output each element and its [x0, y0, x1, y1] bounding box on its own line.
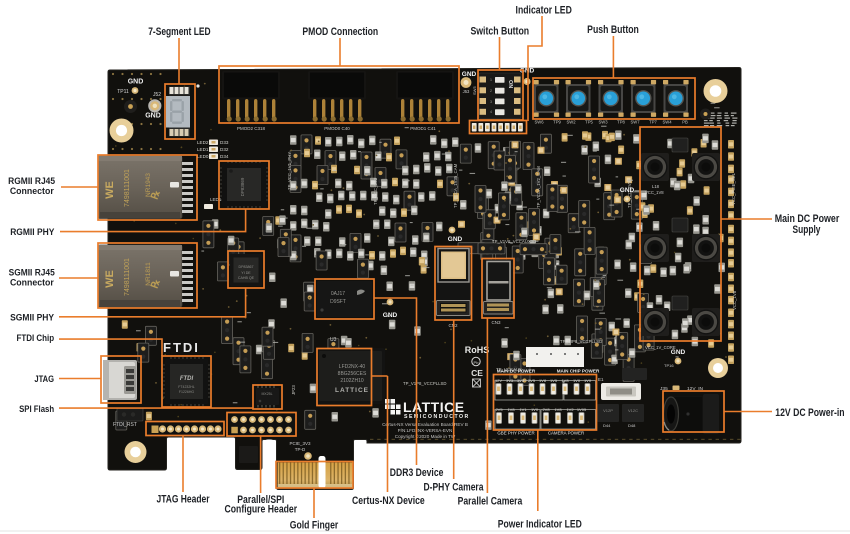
svg-text:JP23: JP23 — [291, 385, 296, 395]
svg-text:3V3: 3V3 — [517, 378, 525, 383]
svg-text:SGMII RJ45: SGMII RJ45 — [9, 267, 55, 277]
svg-text:2102ZH10: 2102ZH10 — [340, 378, 364, 384]
svg-text:RGMII PHY: RGMII PHY — [10, 227, 54, 237]
svg-text:J52: J52 — [153, 92, 161, 98]
svg-text:YI DE: YI DE — [241, 271, 251, 275]
svg-text:V12C: V12C — [628, 408, 638, 413]
svg-text:1V8: 1V8 — [561, 378, 569, 383]
svg-text:CAMERA POWER: CAMERA POWER — [548, 431, 584, 436]
svg-text:DP83869: DP83869 — [240, 177, 245, 196]
svg-text:JTAG Header: JTAG Header — [157, 494, 210, 506]
svg-text:D48: D48 — [628, 423, 636, 428]
svg-text:ON: ON — [507, 80, 513, 88]
svg-text:Configure Header: Configure Header — [225, 503, 298, 515]
svg-text:SW6: SW6 — [534, 120, 544, 125]
svg-text:7-Segment LED: 7-Segment LED — [148, 26, 211, 38]
svg-text:2V8: 2V8 — [542, 407, 550, 412]
svg-text:CE: CE — [471, 368, 483, 378]
svg-text:TP-D: TP-D — [295, 447, 306, 452]
svg-text:MX25L: MX25L — [261, 392, 272, 396]
svg-text:TP_VIP8_VCCPLLSD: TP_VIP8_VCCPLLSD — [560, 339, 602, 344]
svg-text:Power Indicator LED: Power Indicator LED — [498, 518, 582, 530]
svg-text:FT4232HL: FT4232HL — [178, 385, 195, 389]
svg-text:12V: 12V — [495, 378, 502, 383]
svg-text:E1: E1 — [598, 377, 604, 382]
svg-text:TP7: TP7 — [649, 120, 657, 125]
svg-text:MAIN DC POWER: MAIN DC POWER — [497, 369, 536, 374]
svg-text:1V5: 1V5 — [550, 378, 558, 383]
svg-text:WE: WE — [104, 181, 116, 199]
svg-text:PB: PB — [682, 120, 688, 125]
svg-text:SW2: SW2 — [566, 120, 576, 125]
svg-text:PMOD1 C41: PMOD1 C41 — [410, 126, 436, 131]
svg-text:PMOD0 C40: PMOD0 C40 — [324, 126, 350, 131]
svg-text:1V1: 1V1 — [519, 407, 527, 412]
svg-text:MAIN CHIP POWER: MAIN CHIP POWER — [557, 369, 600, 374]
svg-text:GND: GND — [462, 71, 477, 78]
svg-text:TP16: TP16 — [664, 363, 674, 368]
svg-text:1V8: 1V8 — [539, 378, 547, 383]
svg-text:WE: WE — [104, 270, 116, 288]
svg-text:D44: D44 — [603, 423, 611, 428]
svg-text:VCC_1V8: VCC_1V8 — [732, 290, 737, 310]
svg-text:GND: GND — [520, 68, 535, 75]
svg-text:1V0: 1V0 — [531, 407, 539, 412]
svg-text:Pb: Pb — [474, 360, 480, 365]
svg-text:GND: GND — [671, 349, 686, 356]
svg-text:D32: D32 — [220, 147, 229, 152]
svg-text:FTDI: FTDI — [163, 340, 200, 355]
svg-text:LED2: LED2 — [197, 140, 209, 145]
svg-text:TP_VCC_3V3: TP_VCC_3V3 — [373, 177, 378, 205]
svg-text:Connector: Connector — [10, 186, 54, 196]
svg-text:LED0: LED0 — [197, 154, 209, 159]
svg-text:Push Button: Push Button — [587, 24, 639, 36]
svg-text:1V0: 1V0 — [584, 378, 592, 383]
svg-text:Connector: Connector — [10, 277, 54, 287]
svg-text:FTDI_RST: FTDI_RST — [113, 422, 137, 428]
svg-text:TP8: TP8 — [617, 120, 625, 125]
svg-text:D-PHY Camera: D-PHY Camera — [424, 482, 484, 494]
svg-text:Supply: Supply — [793, 224, 821, 236]
svg-text:GND: GND — [383, 312, 398, 319]
svg-text:TP5: TP5 — [585, 120, 593, 125]
svg-text:TP9: TP9 — [553, 120, 561, 125]
svg-text:SW4: SW4 — [662, 120, 672, 125]
svg-text:1V2: 1V2 — [566, 407, 574, 412]
svg-text:LFD2NX-40: LFD2NX-40 — [339, 364, 366, 370]
svg-text:RGMII RJ45: RGMII RJ45 — [8, 176, 55, 186]
svg-text:TP_VCCA_1V2_CAM: TP_VCCA_1V2_CAM — [536, 166, 541, 208]
svg-text:U3: U3 — [330, 337, 337, 343]
svg-text:SW5: SW5 — [472, 86, 477, 95]
svg-text:Gold Finger: Gold Finger — [290, 519, 339, 531]
svg-text:D33: D33 — [220, 140, 229, 145]
svg-text:Switch Button: Switch Button — [470, 26, 529, 38]
svg-text:TP_VCCA_1V35_CAM: TP_VCCA_1V35_CAM — [453, 163, 458, 208]
svg-text:Certus-NX Versa Evaluation Boa: Certus-NX Versa Evaluation Board REV B — [382, 422, 468, 427]
svg-text:1V8: 1V8 — [507, 407, 515, 412]
svg-text:TP_V1P8_VCCPLLSD: TP_V1P8_VCCPLLSD — [403, 381, 446, 386]
svg-text:SEMICONDUCTOR: SEMICONDUCTOR — [404, 414, 470, 420]
svg-text:Parallel Camera: Parallel Camera — [458, 496, 523, 508]
svg-text:Certus-NX Device: Certus-NX Device — [352, 495, 425, 507]
svg-text:V12P: V12P — [603, 408, 613, 413]
svg-text:Copyright ©2020 Made in TW: Copyright ©2020 Made in TW — [395, 433, 456, 439]
svg-text:FTDI: FTDI — [180, 376, 194, 382]
svg-text:SW7: SW7 — [630, 120, 640, 125]
svg-text:D9SFT: D9SFT — [330, 299, 346, 305]
svg-text:LATTICE: LATTICE — [403, 399, 465, 415]
svg-text:2V5: 2V5 — [495, 407, 503, 412]
svg-text:GBE PHY POWER: GBE PHY POWER — [497, 431, 534, 436]
svg-text:1V8: 1V8 — [554, 407, 562, 412]
svg-text:DDR3 Device: DDR3 Device — [390, 467, 444, 479]
svg-text:GND: GND — [145, 113, 161, 120]
svg-text:7498111001: 7498111001 — [124, 258, 131, 296]
svg-text:FTDI Chip: FTDI Chip — [17, 333, 55, 343]
svg-text:PMOD Connection: PMOD Connection — [302, 26, 378, 38]
svg-text:SW3: SW3 — [598, 120, 608, 125]
svg-text:DP83867: DP83867 — [239, 265, 254, 269]
svg-text:Indicator LED: Indicator LED — [516, 5, 573, 17]
svg-text:LED1: LED1 — [210, 197, 222, 202]
svg-text:LED1: LED1 — [197, 147, 209, 152]
svg-text:3V3: 3V3 — [506, 378, 514, 383]
svg-text:TP_VCC_1V1_PHY: TP_VCC_1V1_PHY — [287, 152, 292, 190]
svg-text:PMOD2 C318: PMOD2 C318 — [237, 126, 266, 131]
svg-text:JTAG: JTAG — [34, 374, 54, 384]
svg-text:VCC_1V_CORE: VCC_1V_CORE — [645, 345, 676, 350]
svg-text:L18: L18 — [652, 184, 660, 189]
svg-text:RoHS: RoHS — [465, 345, 490, 355]
svg-text:GND: GND — [620, 187, 635, 194]
svg-text:2V5: 2V5 — [528, 378, 536, 383]
svg-text:TP11: TP11 — [117, 89, 129, 95]
svg-text:CAHB QE: CAHB QE — [238, 276, 255, 280]
svg-text:8BG256CES: 8BG256CES — [338, 371, 367, 377]
svg-text:1V05: 1V05 — [577, 407, 587, 412]
svg-text:VCC_PCIE_SEL: VCC_PCIE_SEL — [731, 172, 736, 205]
svg-text:CN3: CN3 — [491, 320, 500, 325]
svg-text:LATTICE: LATTICE — [335, 387, 369, 394]
svg-text:TP_VCC_2V5: TP_VCC_2V5 — [627, 180, 632, 208]
svg-text:SGMII PHY: SGMII PHY — [10, 312, 54, 322]
svg-text:1V0: 1V0 — [573, 378, 581, 383]
svg-text:F1226HG: F1226HG — [179, 390, 194, 394]
svg-text:GND: GND — [128, 79, 144, 86]
svg-text:D34: D34 — [220, 154, 229, 159]
svg-text:GND: GND — [448, 236, 463, 243]
svg-text:P/N:LFD2NX-VERSA-EVN: P/N:LFD2NX-VERSA-EVN — [398, 428, 453, 433]
svg-text:PCIE_3V3: PCIE_3V3 — [289, 441, 311, 446]
svg-text:12V DC Power-in: 12V DC Power-in — [775, 407, 844, 419]
svg-text:0AJ17: 0AJ17 — [331, 291, 345, 297]
svg-text:VCC_1V8: VCC_1V8 — [645, 190, 664, 195]
svg-text:SPI Flash: SPI Flash — [19, 404, 54, 414]
svg-text:J53: J53 — [463, 89, 470, 94]
svg-text:TP_V1V8_VCCAUX3D: TP_V1V8_VCCAUX3D — [492, 239, 536, 244]
svg-text:7498111001: 7498111001 — [124, 169, 131, 207]
